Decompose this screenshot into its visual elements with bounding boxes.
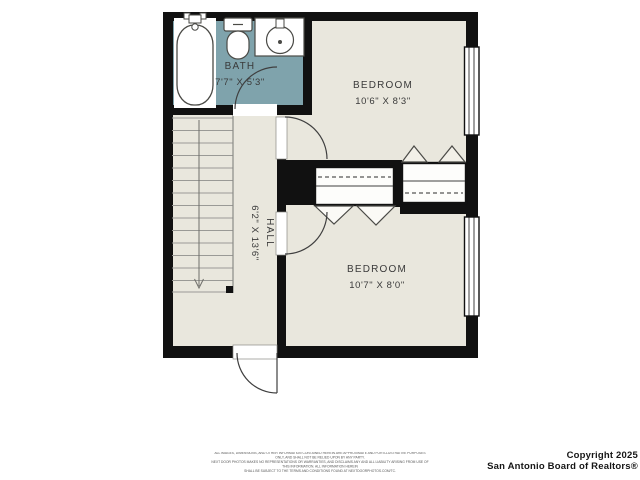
tub-faucet: [189, 15, 201, 23]
copyright-year: Copyright 2025: [370, 450, 638, 461]
wall-left: [163, 12, 173, 358]
wall-hall-lower: [277, 255, 286, 347]
hall-room-label: HALL 6'2" X 13'6": [241, 185, 275, 281]
closet-right-box: [402, 163, 466, 203]
entry-door-gap: [233, 345, 277, 359]
stair-newel-post: [226, 286, 233, 293]
wall-bottom: [163, 346, 478, 358]
bedroom-bottom-room-label: BEDROOM 10'7" X 8'0": [317, 264, 437, 291]
floor-plan: BATH 7'7" X 5'3" BEDROOM 10'6" X 8'3" BE…: [0, 0, 640, 480]
bedroom-top-room-label: BEDROOM 10'6" X 8'3": [323, 80, 443, 107]
room-dimensions: 7'7" X 5'3": [195, 77, 285, 88]
bath-door-gap: [233, 104, 277, 116]
tub-drain: [192, 24, 198, 30]
room-dimensions: 10'6" X 8'3": [323, 96, 443, 107]
bath-room-label: BATH 7'7" X 5'3": [195, 61, 285, 88]
toilet-icon: [227, 31, 249, 59]
wall-closet-divider: [394, 163, 402, 207]
room-name: BATH: [195, 61, 285, 72]
window-icon: [465, 217, 480, 316]
wall-closet-block: [285, 160, 315, 205]
sink-faucet: [276, 19, 284, 28]
floor-plan-drawing: [0, 0, 640, 480]
room-name: BEDROOM: [323, 80, 443, 91]
sink-drain: [278, 40, 282, 44]
bedroom-top-door-gap: [276, 117, 287, 159]
bedroom-bottom-door-gap: [276, 212, 287, 255]
room-name: HALL: [264, 185, 275, 281]
wall-hall-mid: [277, 159, 286, 212]
room-dimensions: 10'7" X 8'0": [317, 280, 437, 291]
room-dimensions: 6'2" X 13'6": [249, 185, 260, 281]
copyright-notice: Copyright 2025 San Antonio Board of Real…: [370, 450, 640, 472]
copyright-owner: San Antonio Board of Realtors®: [370, 461, 638, 472]
window-icon: [465, 47, 480, 135]
wall-below-right-closet: [400, 203, 466, 214]
room-name: BEDROOM: [317, 264, 437, 275]
